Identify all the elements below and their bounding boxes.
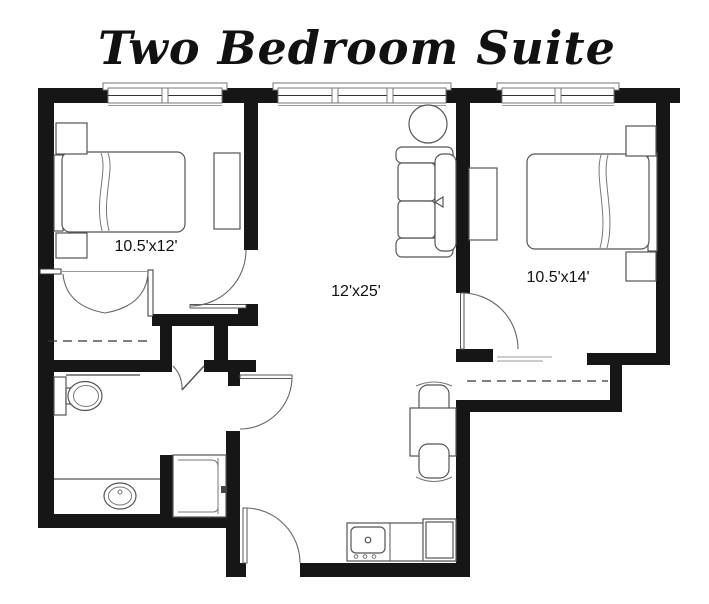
room-label-living: 12'x25' — [331, 283, 381, 300]
toilet-icon — [54, 377, 102, 415]
outer-wall-left — [38, 88, 54, 528]
closet1-jamb — [148, 270, 153, 316]
nightstand-icon — [626, 252, 656, 281]
bedroom2-furniture — [469, 126, 657, 281]
window-living — [273, 83, 451, 106]
shower-icon — [173, 455, 227, 517]
shower-side-wall — [160, 455, 173, 517]
bedroom2-door-arc — [462, 293, 518, 349]
faucet-icon — [365, 537, 371, 543]
bathroom-top-wall — [38, 360, 172, 372]
sofa-icon — [396, 147, 456, 257]
window-bedroom1 — [103, 83, 227, 106]
windows — [103, 83, 619, 106]
dining-set — [410, 382, 456, 482]
floor-plan: Two Bedroom Suite — [0, 0, 709, 604]
outer-wall-right — [656, 88, 670, 365]
outer-wall-top — [614, 88, 680, 103]
kitchen-bottom-wall — [300, 563, 470, 577]
hall-door-leaf — [240, 375, 292, 379]
bathroom-vanity — [54, 479, 160, 509]
vestibule-wall — [152, 314, 258, 326]
hall-door-stub — [228, 372, 240, 386]
bed-icon — [527, 154, 649, 249]
bedroom1-cased-wall — [40, 269, 61, 274]
bedroom1-door-arc — [190, 250, 246, 306]
entry-door-leaf — [243, 508, 247, 563]
closet1-side-stub — [160, 326, 172, 362]
living-right-wall — [456, 400, 470, 577]
room-label-bedroom1: 10.5'x12' — [114, 238, 177, 255]
floor-plan-page: Two Bedroom Suite — [0, 0, 709, 604]
plan-title: Two Bedroom Suite — [98, 21, 616, 75]
shower-handle-icon — [221, 486, 227, 493]
bedroom2-living-wall — [456, 103, 470, 293]
bath-living-wall — [226, 431, 240, 563]
nightstand-icon — [626, 126, 656, 156]
french-door-arc — [63, 274, 105, 313]
bedroom2-door-leaf — [461, 293, 465, 349]
nightstand-icon — [56, 233, 87, 258]
living-furniture — [347, 105, 456, 561]
hall-door-arc — [240, 377, 292, 429]
outer-wall-top — [222, 88, 278, 103]
outer-wall-top — [446, 88, 502, 103]
bathroom-door-arc — [173, 366, 182, 390]
dresser-icon — [214, 153, 240, 229]
bedroom2-door-stub — [456, 349, 493, 362]
closet2-bottom-wall — [456, 400, 622, 412]
kitchenette — [347, 519, 456, 561]
bathroom-door-leaf — [182, 366, 204, 390]
hall-wall — [214, 326, 228, 362]
room-label-bedroom2: 10.5'x14' — [526, 269, 589, 286]
bathroom-door-stub — [204, 360, 256, 372]
bedroom1-living-wall — [244, 103, 258, 250]
round-table-icon — [409, 105, 447, 143]
dining-chair-icon — [419, 444, 449, 478]
entry-door-arc — [246, 508, 300, 563]
bathroom-fixtures — [54, 377, 227, 517]
entry-door-jamb — [226, 563, 246, 577]
bed-icon — [62, 152, 185, 232]
window-bedroom2 — [497, 83, 619, 106]
nightstand-icon — [56, 123, 87, 154]
dresser-icon — [469, 168, 497, 240]
refrigerator-inner — [426, 522, 453, 558]
french-door-arc — [105, 274, 148, 313]
bedroom2-south-wall — [587, 353, 670, 365]
